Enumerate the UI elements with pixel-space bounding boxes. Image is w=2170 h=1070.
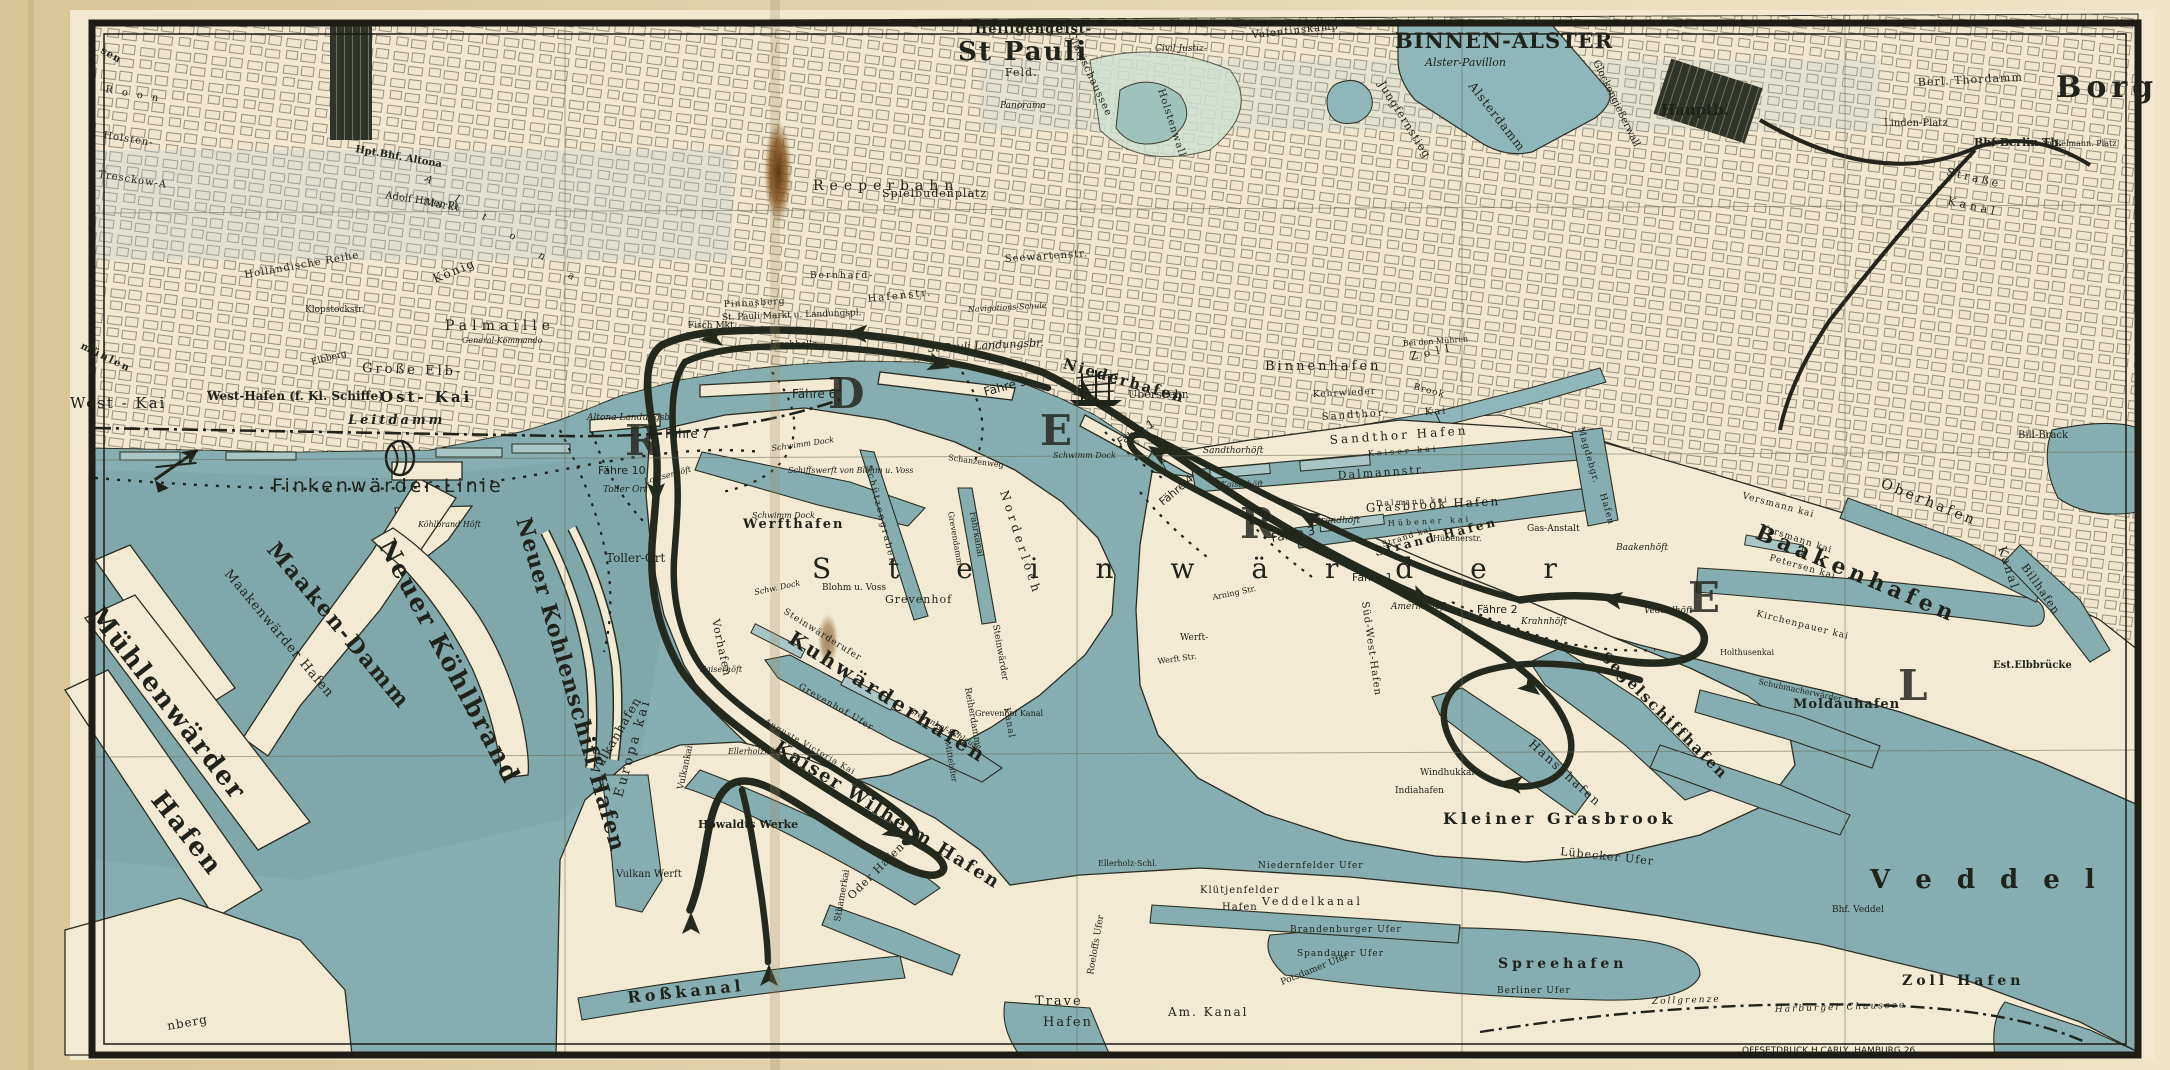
altona-station-rails bbox=[330, 22, 372, 140]
map-label: Köhlbrand Höft bbox=[417, 520, 482, 529]
map-label: Schwimm Dock bbox=[752, 511, 815, 520]
map-label: Spielbudenplatz bbox=[882, 187, 987, 200]
map-label: Howaldts Werke bbox=[698, 818, 798, 831]
map-label: Klopstockstr. bbox=[305, 305, 364, 315]
river-letter: E bbox=[1040, 406, 1072, 455]
map-label: Finkenwärder-Linie bbox=[272, 475, 504, 497]
river-letter: D bbox=[828, 369, 864, 418]
map-label: Bhf. Veddel bbox=[1832, 905, 1884, 915]
map-label: Anckelmann. Platz bbox=[2040, 139, 2116, 148]
river-letter: R bbox=[625, 416, 661, 465]
map-label: Hauptb. bbox=[1661, 101, 1729, 119]
map-label: Kai bbox=[1424, 405, 1447, 418]
map-label: Grevenhof bbox=[885, 593, 952, 606]
map-label: Fischhalle bbox=[769, 340, 817, 350]
map-label: Am. Kanal bbox=[1167, 1005, 1249, 1019]
map-label: Fähre 2 bbox=[1477, 603, 1518, 616]
river-letter: L bbox=[1898, 661, 1928, 710]
map-label: West-Hafen (f. Kl. Schiffe) bbox=[206, 389, 384, 403]
map-label: Baakenhöft bbox=[1615, 543, 1668, 553]
map-label: Hafen bbox=[1043, 1015, 1093, 1030]
river-letter: R bbox=[1240, 499, 1276, 548]
map-label: Sandthorhöft bbox=[1203, 446, 1264, 456]
map-label: General-Kommando bbox=[462, 336, 543, 345]
map-label: Zoll Hafen bbox=[1902, 973, 2024, 989]
map-label: Vulkan Werft bbox=[615, 869, 682, 880]
map-label: Schiffswerft von Blohm u. Voss bbox=[788, 466, 913, 475]
map-label: Fisch Mkt. bbox=[688, 321, 737, 331]
map-label: Borg bbox=[2056, 70, 2158, 105]
map-label: Bernhard- bbox=[810, 271, 874, 281]
map-label: Kleiner Grasbrook bbox=[1443, 809, 1677, 828]
map-label: Holthusenkai bbox=[1720, 648, 1774, 657]
map-label: Civil Justiz- bbox=[1155, 44, 1207, 54]
map-label: Windhukkai bbox=[1420, 768, 1474, 778]
map-label: Feld. bbox=[1005, 66, 1038, 79]
map-label: V e d d e l bbox=[1869, 865, 2103, 895]
map-label: Binnenhafen bbox=[1265, 359, 1382, 374]
map-label: Ost- Kai bbox=[380, 388, 472, 406]
map-label: Fähre 10 bbox=[598, 464, 646, 477]
map-label: Amerikahöft bbox=[1390, 602, 1448, 612]
map-label: Berliner Ufer bbox=[1497, 986, 1571, 996]
map-label: Palmaille bbox=[445, 318, 555, 334]
map-label: OFFSETDRUCK H.CARLY, HAMBURG 26. bbox=[1742, 1046, 1918, 1056]
map-page: senA l t o n aR o o nHolsten-Tresckow-Am… bbox=[0, 0, 2170, 1070]
map-label: Moldauhafen bbox=[1793, 697, 1900, 712]
burn-stain bbox=[764, 120, 792, 224]
map-label: Veddelkanal bbox=[1261, 895, 1363, 908]
map-label: Linden-Platz bbox=[1884, 118, 1948, 129]
map-label: Krahnhöft bbox=[1520, 617, 1568, 627]
map-label: Fähre 7 bbox=[665, 427, 709, 441]
map-label: Toller-Ort bbox=[606, 551, 665, 565]
map-label: Brandenburger Ufer bbox=[1290, 925, 1402, 935]
map-label: Gas-Anstalt bbox=[1527, 524, 1580, 534]
map-label: Alster-Pavillon bbox=[1424, 56, 1506, 69]
map-label: Trave bbox=[1035, 994, 1083, 1009]
map-label: Grevenhof Kanal bbox=[975, 709, 1043, 718]
map-label: Veddelhöft bbox=[1644, 606, 1693, 616]
map-label: Ellerholz-Schl. bbox=[1098, 859, 1157, 868]
map-label: Indiahafen bbox=[1395, 786, 1444, 796]
map-label: Überseebr. bbox=[1128, 387, 1189, 401]
map-label: Kaiserhöft bbox=[1220, 480, 1264, 489]
alster-pond bbox=[1327, 80, 1372, 123]
map-label: Ellerholzhöft bbox=[727, 747, 781, 756]
map-label: BINNEN-ALSTER bbox=[1395, 28, 1613, 53]
map-label: Hafen bbox=[1222, 902, 1258, 913]
map-label: West - Kai bbox=[70, 394, 166, 412]
map-label: Est.Elbbrücke bbox=[1993, 660, 2072, 671]
map-label: Spreehafen bbox=[1498, 956, 1627, 972]
map-label: Toller Ort bbox=[603, 485, 648, 495]
map-label: Strandhöft bbox=[1311, 516, 1361, 526]
map-label: Leitdamm bbox=[347, 413, 445, 428]
river-letter: E bbox=[1688, 573, 1720, 622]
map-label: Panorama bbox=[999, 101, 1046, 111]
map-label: Bill-Brack bbox=[2018, 430, 2069, 441]
map-label: Niedernfelder Ufer bbox=[1258, 861, 1364, 871]
island-name-steinwaerder: S t e i n w ä r d e r bbox=[812, 552, 1581, 585]
harbor-map: senA l t o n aR o o nHolsten-Tresckow-Am… bbox=[0, 0, 2170, 1070]
map-label: Kaiserhöft bbox=[699, 665, 743, 674]
map-label: Werft- bbox=[1180, 633, 1208, 643]
